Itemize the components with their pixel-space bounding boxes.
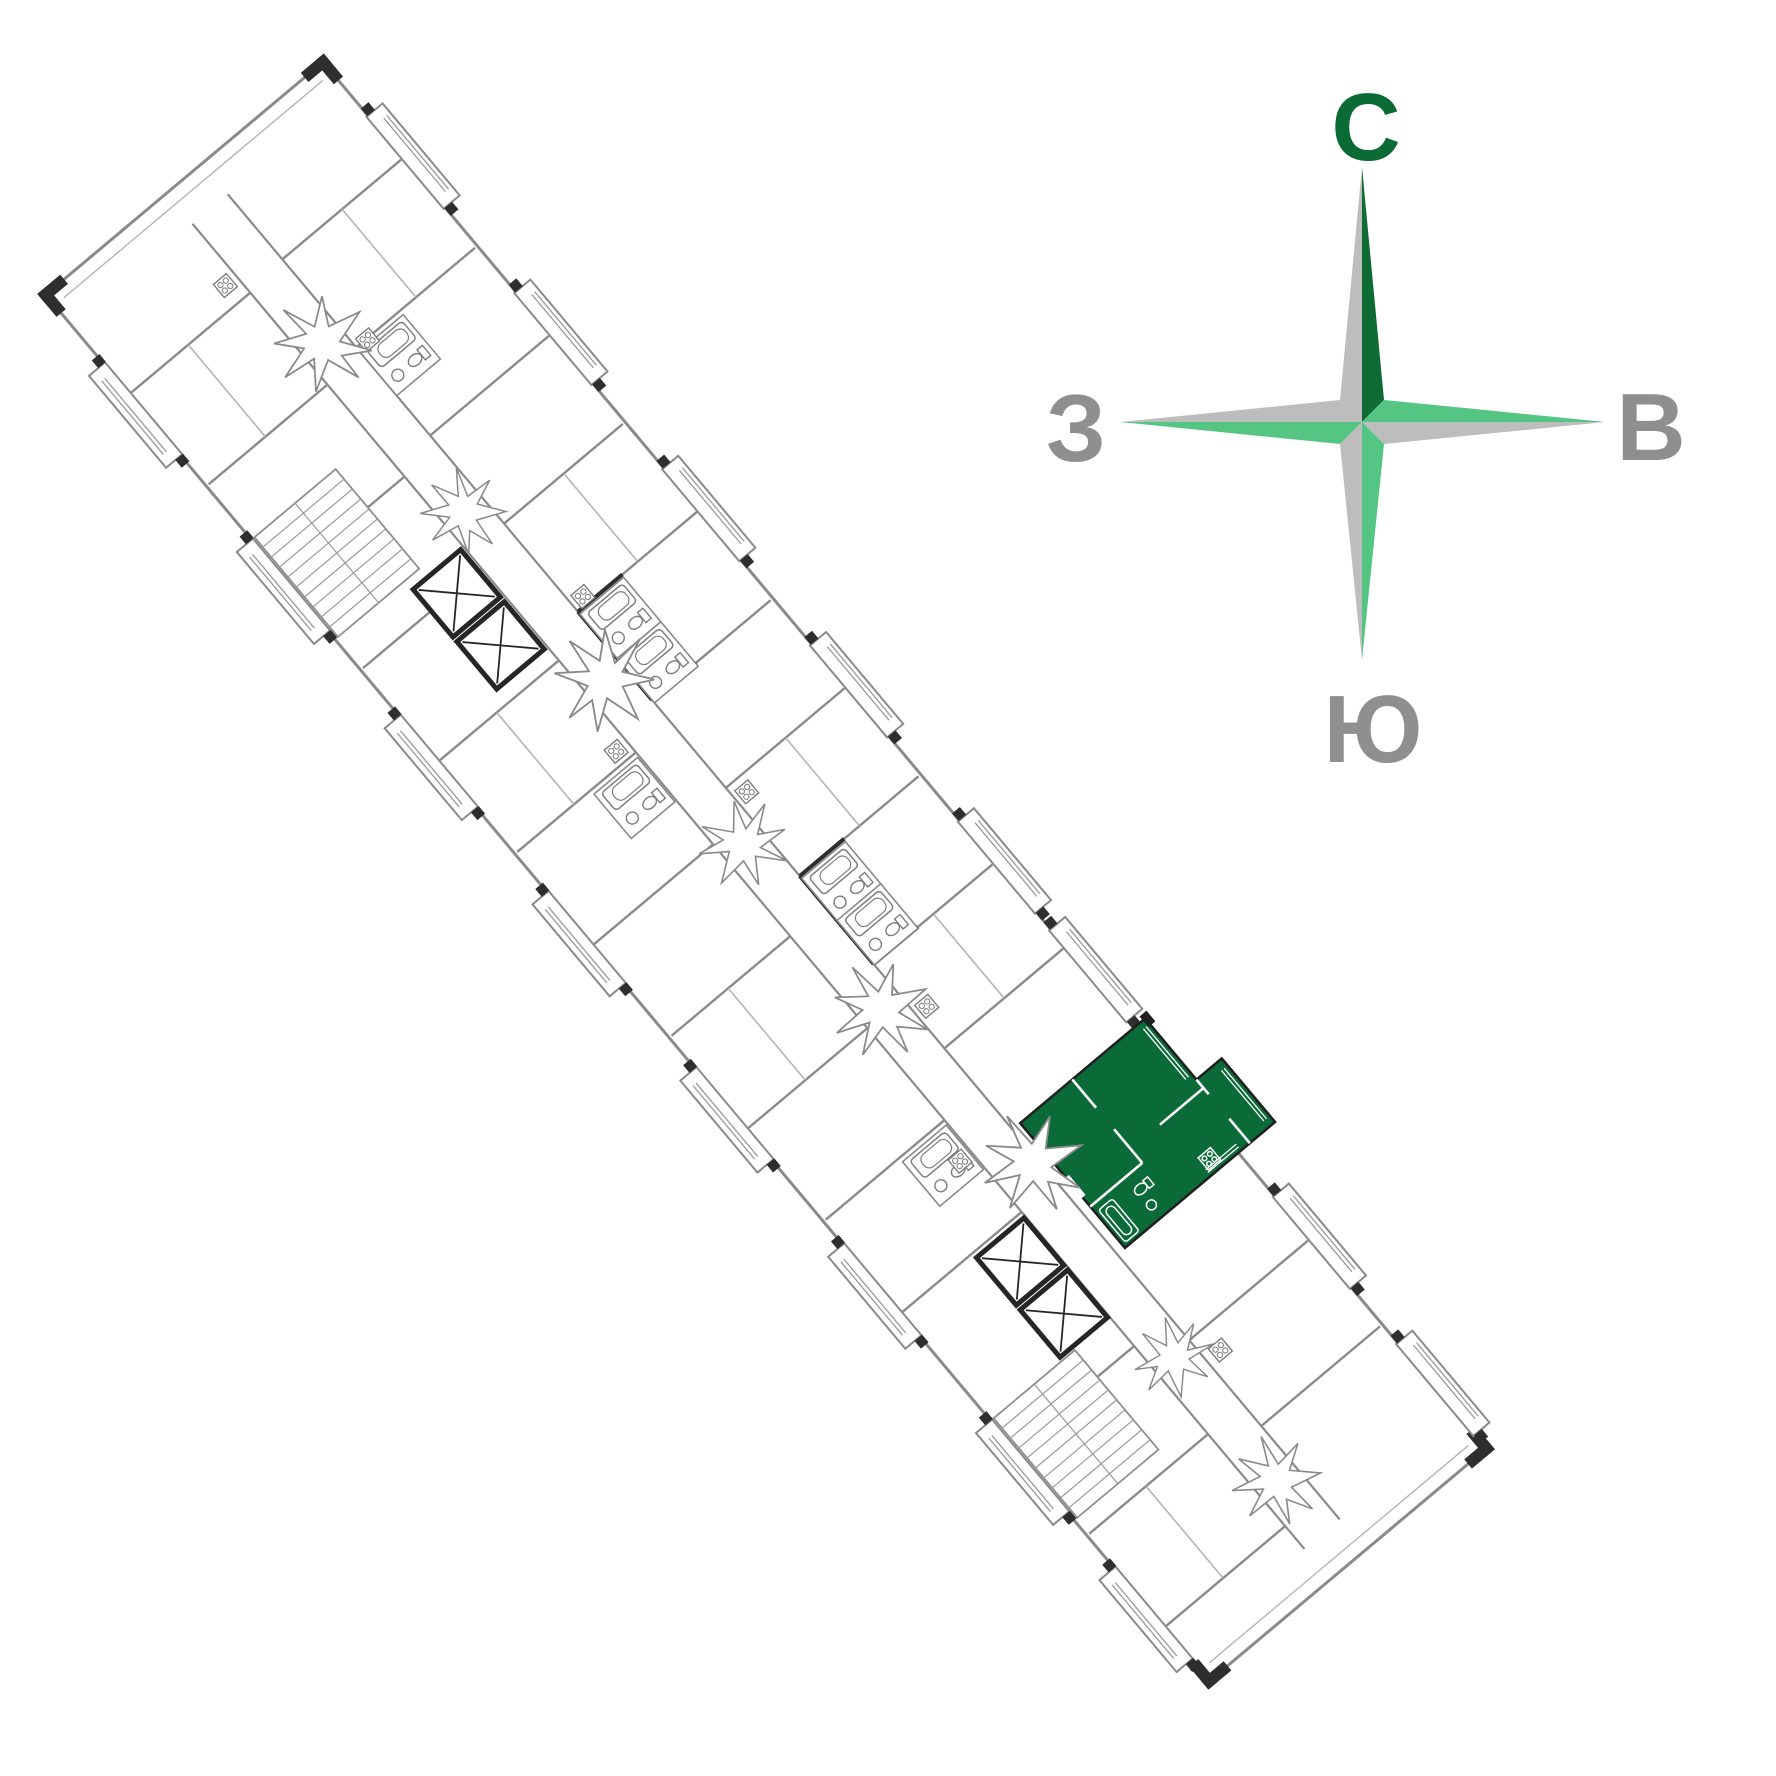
compass-arm-south-gray	[1340, 422, 1362, 660]
compass-label-west: З	[1046, 375, 1106, 482]
compass-arm-south-light	[1362, 422, 1384, 660]
compass-rose: С З В Ю	[1046, 74, 1686, 783]
compass-arm-east-gray	[1362, 422, 1605, 444]
compass-arm-west-light	[1120, 422, 1362, 444]
compass-arm-north-gray	[1340, 167, 1362, 422]
compass-arm-north-dark	[1362, 167, 1384, 422]
compass-arm-east-light	[1362, 400, 1605, 422]
compass-label-north: С	[1331, 74, 1400, 181]
page: С З В Ю	[0, 0, 1776, 1776]
compass-label-east: В	[1616, 374, 1685, 481]
compass-label-south: Ю	[1324, 676, 1423, 783]
floor-plan-canvas: С З В Ю	[0, 0, 1776, 1776]
building-plan	[27, 27, 1527, 1698]
compass-arm-west-gray	[1120, 400, 1362, 422]
